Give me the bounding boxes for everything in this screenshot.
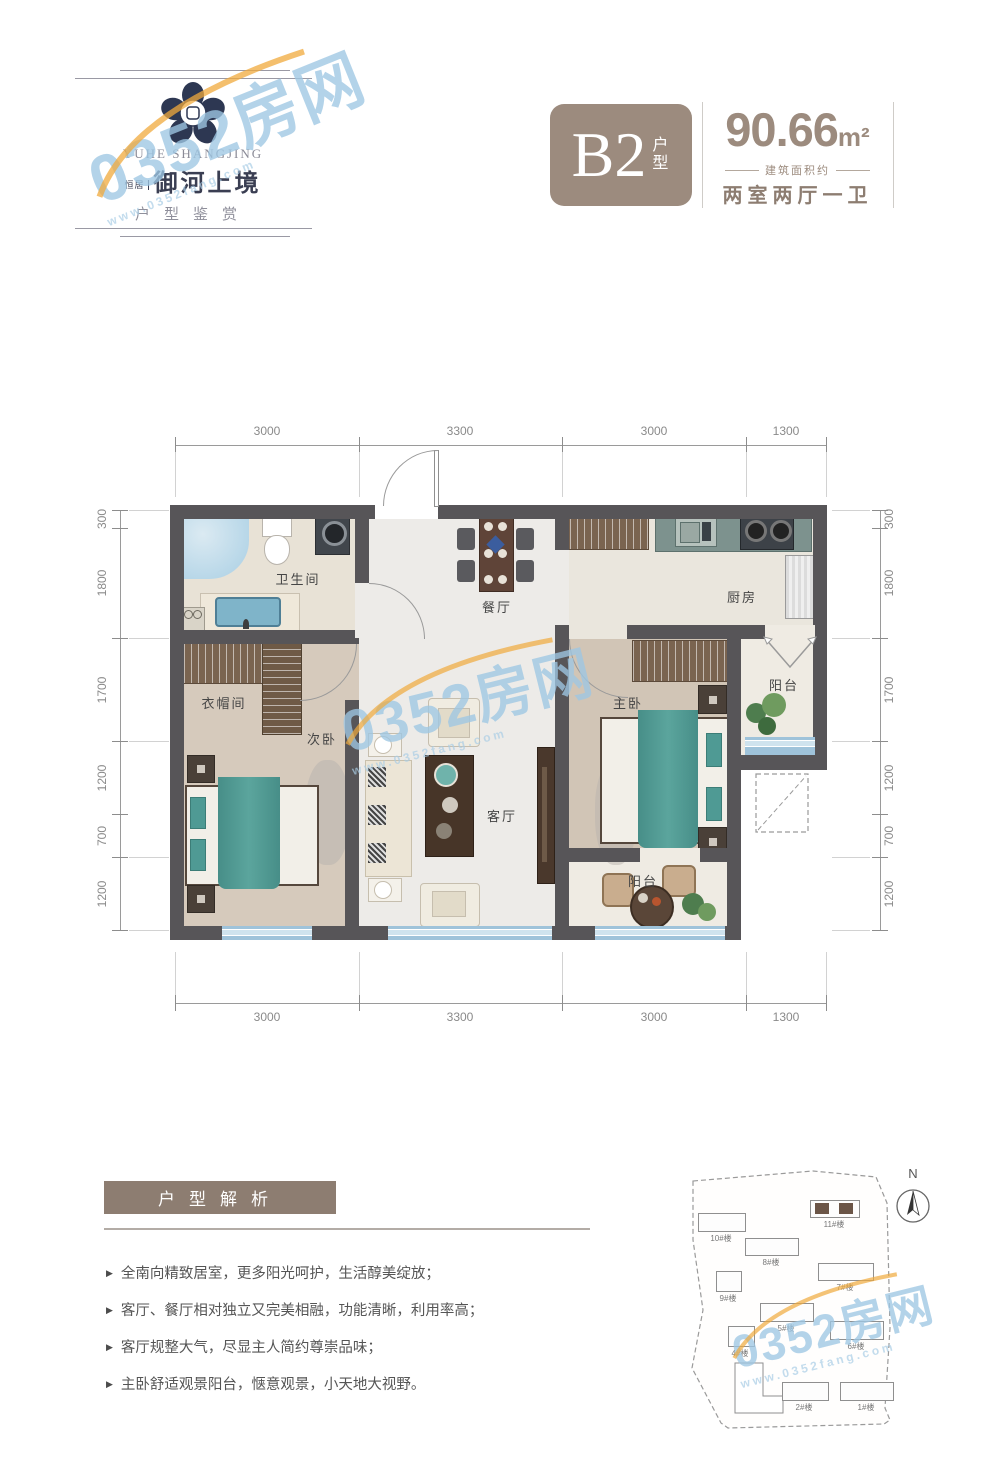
washing-machine-drum [322,521,347,546]
cloakroom-rail [183,642,264,684]
building-label: 7#楼 [823,1282,867,1293]
bullet-marker: ▶ [106,1305,113,1315]
building-label: 8#楼 [749,1257,793,1268]
dim-extension [562,452,563,497]
dim-tick [562,437,563,453]
dim-left-3: 1700 [95,660,109,720]
sofa-pillow [368,767,386,787]
dim-right-5: 700 [882,806,896,866]
wardrobe-master [632,640,737,682]
dim-tick [112,510,128,511]
table-decor [434,763,458,787]
brand-prefix: 恒居 [124,180,148,190]
side-table-top [374,736,392,754]
dim-tick [872,741,888,742]
laundry-dial [193,610,202,619]
brand-name-cn: 恒居御河上境 [68,163,318,198]
analysis-bullet-1: ▶全南向精致居室，更多阳光呵护，生活醇美绽放； [106,1262,626,1283]
nightstand [187,885,215,913]
divider [725,170,759,171]
window-living-room [388,926,552,940]
divider [836,170,870,171]
divider [702,102,703,208]
dim-right-4: 1200 [882,748,896,808]
dim-tick [112,857,128,858]
dim-tick [826,995,827,1011]
bullet-marker: ▶ [106,1379,113,1389]
divider [75,228,312,229]
dim-left-4: 1200 [95,748,109,808]
dim-extension [175,452,176,497]
building-label: 9#楼 [706,1293,750,1304]
burner [770,520,792,542]
unit-type-badge: B2 户型 [550,104,692,206]
dim-tick [826,437,827,453]
table-decor [436,823,452,839]
dim-tick [175,995,176,1011]
highlight-unit [815,1203,829,1214]
analysis-bullet-3: ▶客厅规整大气，尽显主人简约尊崇品味； [106,1336,626,1357]
equipment-platform [755,773,809,833]
room-label-second-bedroom: 次卧 [292,729,352,748]
bathroom-door-opening [355,583,369,638]
table-decor [652,897,661,906]
dim-left-2: 1800 [95,553,109,613]
bullet-marker: ▶ [106,1342,113,1352]
dim-tick [359,995,360,1011]
window-balcony-south [595,926,725,940]
armchair-cushion [438,708,470,738]
dim-bottom-1: 3000 [237,1010,297,1024]
burner [745,520,767,542]
dim-top-1: 3000 [237,424,297,438]
dim-extension [832,857,870,858]
dim-extension [746,452,747,497]
brand-emblem-flower-icon [158,82,228,146]
kitchen-sink-bowl [680,522,700,543]
dim-extension [832,741,870,742]
floor-plan: 卫生间 餐厅 厨房 衣帽间 次卧 主卧 阳台 客厅 阳台 [170,505,827,940]
wardrobe-second-bedroom [262,640,302,735]
wall [170,505,827,519]
dim-extension [832,930,870,931]
dim-extension [175,952,176,995]
bed-blanket [638,710,698,848]
building-4 [728,1326,755,1347]
table-decor [442,797,458,813]
building-label: 1#楼 [844,1402,888,1413]
building-1 [840,1382,894,1401]
bullet-marker: ▶ [106,1268,113,1278]
kitchen-balcony-door [762,635,818,671]
tv-screen [542,767,547,862]
dim-tick [112,638,128,639]
plate [484,522,493,531]
entry-opening [375,505,438,519]
dim-extension [129,638,169,639]
dim-tick [746,437,747,453]
toilet [264,535,290,565]
wall [555,625,569,926]
dim-extension [562,952,563,995]
room-label-balcony-south: 阳台 [613,871,673,890]
wall [727,625,741,940]
brand-name-en: YUHE SHANGJING [68,146,318,162]
refrigerator [785,555,814,619]
dim-extension [832,510,870,511]
nightstand [187,755,215,783]
dining-chair [457,560,475,582]
dim-extension [359,952,360,995]
dim-tick [562,995,563,1011]
dim-bottom-2: 3300 [430,1010,490,1024]
dim-tick [112,930,128,931]
wall [741,755,827,770]
dim-tick [112,814,128,815]
dim-left-6: 1200 [95,864,109,924]
unit-code: B2 [572,123,647,187]
wall [555,505,569,550]
dim-tick [112,741,128,742]
room-label-balcony-kitchen: 阳台 [754,675,814,694]
building-label: 5#楼 [764,1323,808,1334]
dim-bottom-3: 3000 [624,1010,684,1024]
north-label: N [901,1166,925,1181]
divider [120,236,290,237]
laundry-dial [184,610,193,619]
building-8 [745,1238,799,1256]
plate [484,575,493,584]
divider [120,70,290,71]
compass-icon [891,1182,935,1230]
plant [762,693,786,717]
dim-extension [359,452,360,497]
dim-top-2: 3300 [430,424,490,438]
room-label-living-room: 客厅 [472,806,532,825]
building-2 [782,1382,829,1401]
room-label-master-bedroom: 主卧 [598,693,658,712]
building-6 [830,1321,884,1340]
dim-tick [175,437,176,453]
bed-blanket [218,777,280,889]
dim-right-1: 300 [882,489,896,549]
room-label-kitchen: 厨房 [712,587,772,606]
page: YUHE SHANGJING 恒居御河上境 户型鉴赏 B2 户型 90.66m²… [0,0,1000,1457]
analysis-bullet-2: ▶客厅、餐厅相对独立又完美相融，功能清晰，利用率高； [106,1299,626,1320]
pillow [190,797,206,829]
pillow [190,839,206,871]
building-10 [698,1213,746,1232]
dimension-line-left [120,510,121,930]
divider [893,102,894,208]
building-11-highlighted [810,1200,860,1218]
plant [758,717,776,735]
building-label: 6#楼 [834,1341,878,1352]
plate [498,549,507,558]
dim-left-5: 700 [95,806,109,866]
watermark: 0352房网 www.0352fang.com [80,44,380,229]
dim-tick [112,528,128,529]
dim-extension [129,510,169,511]
room-label-cloakroom: 衣帽间 [189,693,259,712]
building-9 [716,1271,742,1292]
dining-chair [516,528,534,550]
dining-chair [457,528,475,550]
entry-closet [562,515,649,550]
dim-extension [129,930,169,931]
dining-chair [516,560,534,582]
area-note: 建筑面积约 [705,162,890,178]
dim-right-2: 1800 [882,553,896,613]
dim-tick [872,930,888,931]
building-7 [818,1263,874,1281]
dim-tick [872,638,888,639]
wall [170,630,359,644]
faucet [243,619,249,629]
kitchen-sink-drain [702,522,711,541]
pillow [706,787,722,821]
plate [498,522,507,531]
building-5 [760,1303,814,1322]
dim-extension [826,452,827,497]
dim-extension [832,638,870,639]
building-label: 11#楼 [812,1219,856,1230]
dim-extension [746,952,747,995]
building-label: 2#楼 [782,1402,826,1413]
dim-tick [746,995,747,1011]
dim-extension [826,952,827,995]
dim-extension [129,741,169,742]
pillow [706,733,722,767]
divider [104,1228,590,1230]
analysis-title-band: 户型解析 [104,1181,336,1214]
dim-left-1: 300 [95,489,109,549]
dim-tick [359,437,360,453]
balcony-door-opening [640,848,700,862]
room-label-dining: 餐厅 [467,597,527,616]
dim-right-3: 1700 [882,660,896,720]
building-label: 4#楼 [718,1348,762,1359]
dim-top-4: 1300 [756,424,816,438]
wall [170,505,184,940]
balcony-table [630,885,674,929]
highlight-unit [839,1203,853,1214]
side-table-top [374,881,392,899]
dim-right-6: 1200 [882,864,896,924]
sofa-pillow [368,843,386,863]
brand-tagline: 户型鉴赏 [68,203,318,224]
entry-door-arc [383,450,438,506]
unit-code-suffix: 户型 [652,137,670,174]
nightstand [698,685,727,714]
unit-layout-desc: 两室两厅一卫 [705,179,890,208]
table-decor [638,893,648,903]
room-label-bathroom: 卫生间 [263,569,333,588]
unit-area: 90.66m² [705,102,890,157]
dimension-line-top [175,445,826,446]
dim-top-3: 3000 [624,424,684,438]
dim-bottom-4: 1300 [756,1010,816,1024]
window-second-bedroom [222,926,312,940]
window-balcony-kitchen [745,737,815,755]
plant [698,903,716,921]
plate [498,575,507,584]
master-door-opening [569,625,627,639]
sofa-pillow [368,805,386,825]
dimension-line-bottom [175,1003,826,1004]
analysis-bullet-4: ▶主卧舒适观景阳台，惬意观景，小天地大视野。 [106,1373,626,1394]
dimension-line-right [880,510,881,930]
armchair-cushion [432,891,466,917]
dim-extension [129,857,169,858]
building-label: 10#楼 [699,1233,743,1244]
divider [75,78,312,79]
